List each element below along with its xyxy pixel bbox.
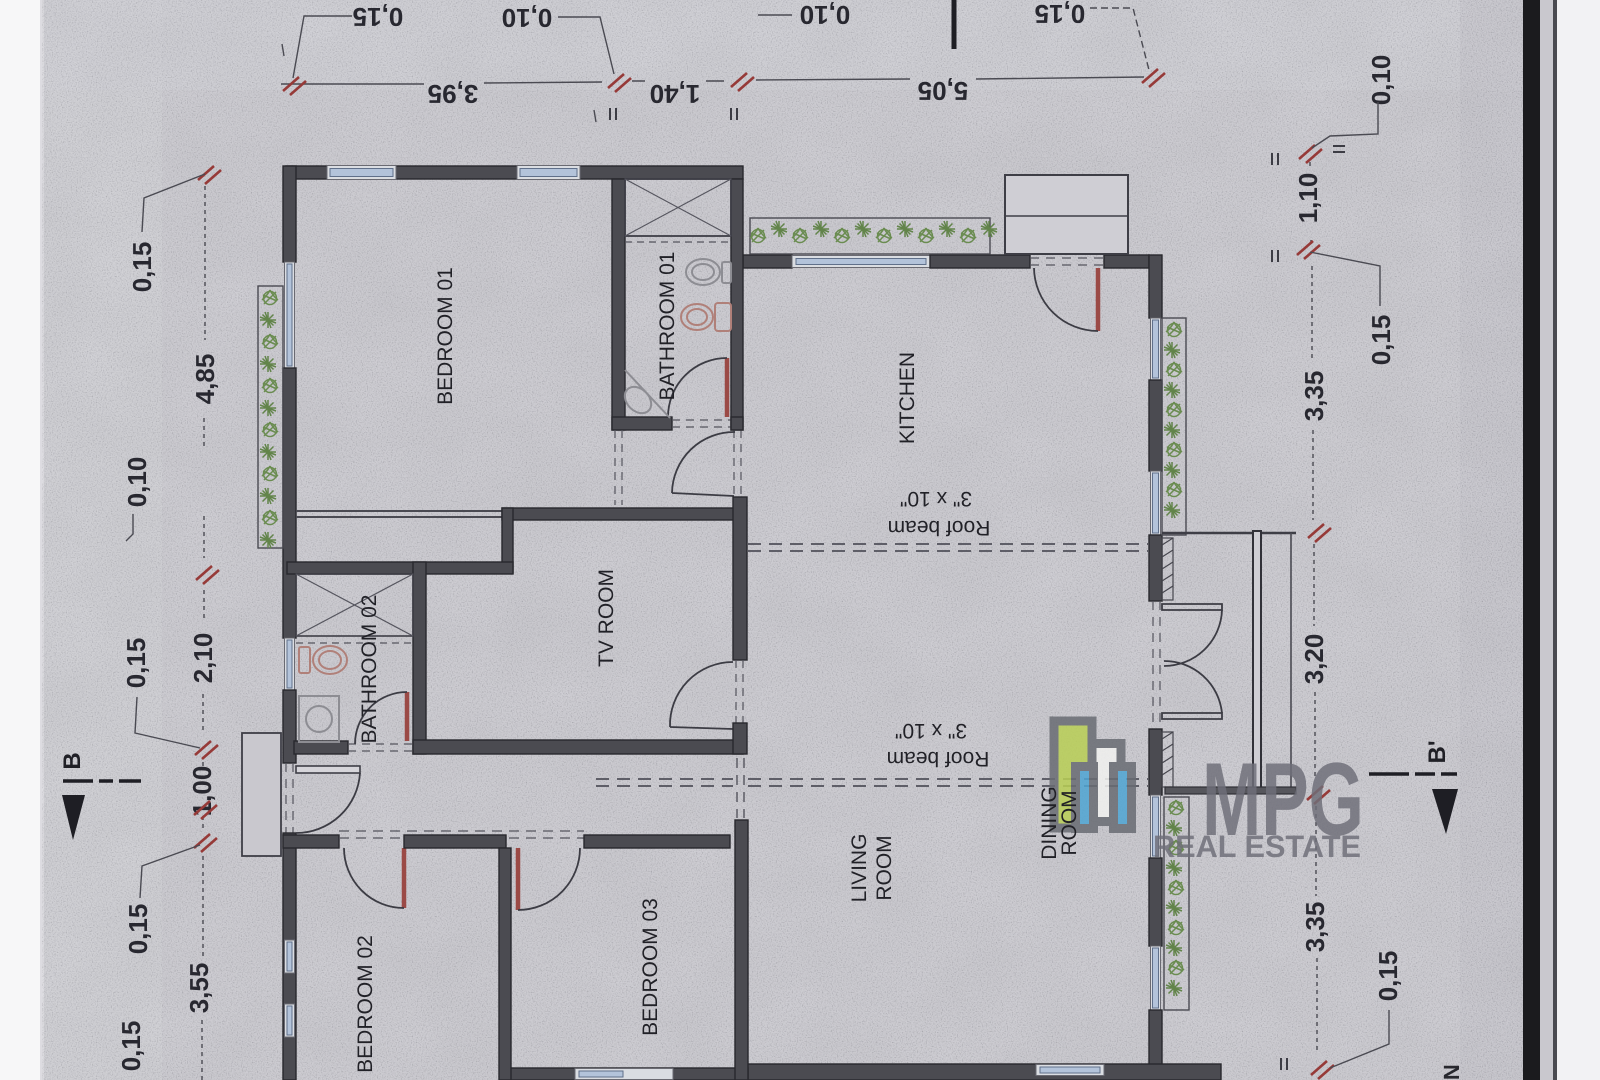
svg-text:1,40: 1,40	[650, 79, 701, 109]
svg-text:3,20: 3,20	[1299, 634, 1329, 685]
svg-text:B: B	[59, 752, 86, 769]
svg-text:BATHROOM 02: BATHROOM 02	[358, 595, 381, 744]
svg-text:0,15: 0,15	[1366, 315, 1396, 366]
svg-text:3,55: 3,55	[184, 963, 214, 1014]
svg-text:REAL ESTATE: REAL ESTATE	[1153, 829, 1361, 864]
svg-text:3,95: 3,95	[428, 79, 479, 109]
svg-text:1,10: 1,10	[1293, 173, 1323, 224]
svg-text:TV ROOM: TV ROOM	[595, 569, 618, 667]
svg-text:BEDROOM 02: BEDROOM 02	[354, 935, 377, 1073]
svg-text:LIVING: LIVING	[848, 834, 871, 903]
svg-text:0,10: 0,10	[1366, 55, 1396, 106]
svg-text:0,15: 0,15	[1373, 951, 1403, 1002]
svg-text:ROOM: ROOM	[1058, 790, 1081, 855]
svg-text:0,10: 0,10	[122, 457, 152, 508]
svg-text:0,15: 0,15	[121, 638, 151, 689]
svg-text:ROOM: ROOM	[873, 835, 896, 900]
svg-text:BEDROOM 03: BEDROOM 03	[639, 898, 662, 1036]
svg-text:3,35: 3,35	[1300, 902, 1330, 953]
svg-text:0,15: 0,15	[127, 242, 157, 293]
svg-text:Roof beam: Roof beam	[887, 747, 990, 770]
svg-text:Roof beam: Roof beam	[888, 516, 991, 539]
svg-text:3" x 10": 3" x 10"	[900, 487, 972, 510]
svg-text:0,15: 0,15	[1035, 0, 1086, 29]
svg-text:BEDROOM 01: BEDROOM 01	[434, 267, 457, 405]
svg-text:KITCHEN: KITCHEN	[896, 352, 919, 444]
svg-text:0,15: 0,15	[123, 904, 153, 955]
svg-text:0,10: 0,10	[502, 3, 553, 33]
svg-text:0,10: 0,10	[800, 0, 851, 30]
svg-text:3" x 10": 3" x 10"	[895, 719, 967, 742]
svg-text:3,35: 3,35	[1299, 371, 1329, 422]
svg-text:4,85: 4,85	[190, 354, 220, 405]
svg-text:AN: AN	[1439, 1064, 1464, 1080]
svg-text:2,10: 2,10	[188, 633, 218, 684]
svg-text:0,15: 0,15	[116, 1021, 146, 1072]
svg-text:0,15: 0,15	[353, 2, 404, 32]
svg-text:B': B'	[1424, 740, 1451, 763]
svg-text:5,05: 5,05	[918, 76, 969, 106]
svg-text:BATHROOM 01: BATHROOM 01	[656, 252, 679, 401]
